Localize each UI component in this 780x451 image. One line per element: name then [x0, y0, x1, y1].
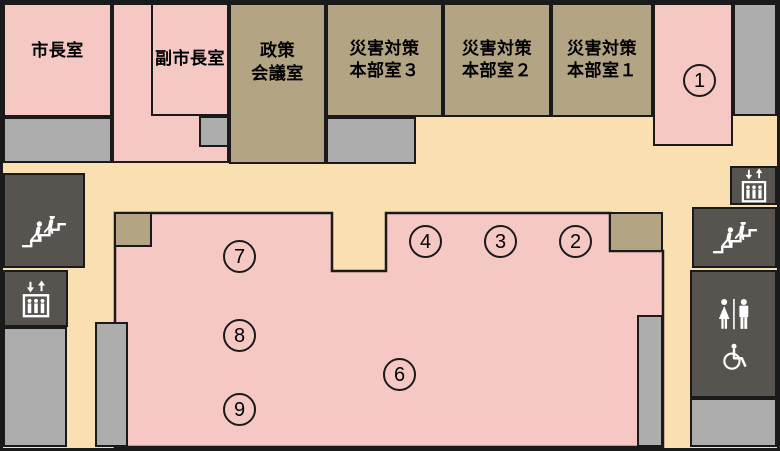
elevator-icon [22, 280, 50, 318]
stairs-area-right [692, 207, 777, 268]
restroom-icon [715, 298, 753, 331]
gray-block-bottom-right [690, 398, 777, 447]
restroom-area [690, 270, 777, 398]
room-disaster-hq-2-label-2: 本部室２ [462, 60, 532, 82]
gray-strip-bottom-right [637, 315, 663, 447]
room-disaster-hq-1-label-1: 災害対策 [567, 38, 637, 60]
room-policy-meeting: 政策 会議室 [229, 3, 326, 164]
wheelchair-icon [720, 343, 748, 371]
marker-8: 8 [223, 319, 256, 352]
floor-map: 市長室 副市長室 政策 会議室 災害対策 本部室３ 災害対策 本部室２ 災害対策… [0, 0, 780, 451]
tan-block-left [114, 212, 152, 247]
room-mayor: 市長室 [3, 3, 112, 117]
room-deputy-mayor: 副市長室 [151, 3, 229, 116]
tan-block-right [609, 212, 663, 252]
elevator-icon [741, 168, 767, 203]
gray-block-under-deputy-mayor [199, 116, 229, 147]
marker-2: 2 [559, 225, 592, 258]
gray-block-under-mayor [3, 117, 112, 163]
marker-9: 9 [223, 393, 256, 426]
marker-1: 1 [683, 64, 716, 97]
room-disaster-hq-2: 災害対策 本部室２ [443, 3, 551, 117]
room-disaster-hq-2-label-1: 災害対策 [462, 38, 532, 60]
gray-block-bottom-left [3, 327, 67, 447]
room-policy-meeting-label-2: 会議室 [251, 63, 304, 85]
room-disaster-hq-3: 災害対策 本部室３ [326, 3, 443, 117]
marker-6: 6 [383, 358, 416, 391]
marker-7: 7 [223, 240, 256, 273]
room-mayor-label: 市長室 [31, 40, 84, 62]
elevator-area-left [3, 270, 68, 327]
stairs-icon [711, 222, 759, 254]
room-disaster-hq-1: 災害対策 本部室１ [551, 3, 653, 117]
stairs-area-left [3, 173, 85, 268]
gray-strip-top-right [733, 3, 777, 116]
marker-3: 3 [484, 225, 517, 258]
room-deputy-mayor-label: 副市長室 [155, 48, 225, 70]
room-disaster-hq-3-label-1: 災害対策 [350, 38, 420, 60]
gray-strip-bottom-left [95, 322, 128, 447]
room-disaster-hq-1-label-2: 本部室１ [567, 60, 637, 82]
gray-block-under-hq3 [326, 117, 416, 164]
marker-4: 4 [409, 225, 442, 258]
room-disaster-hq-3-label-2: 本部室３ [350, 60, 420, 82]
elevator-area-right [730, 166, 777, 205]
stairs-icon [20, 216, 68, 248]
room-policy-meeting-label-1: 政策 [260, 40, 295, 62]
